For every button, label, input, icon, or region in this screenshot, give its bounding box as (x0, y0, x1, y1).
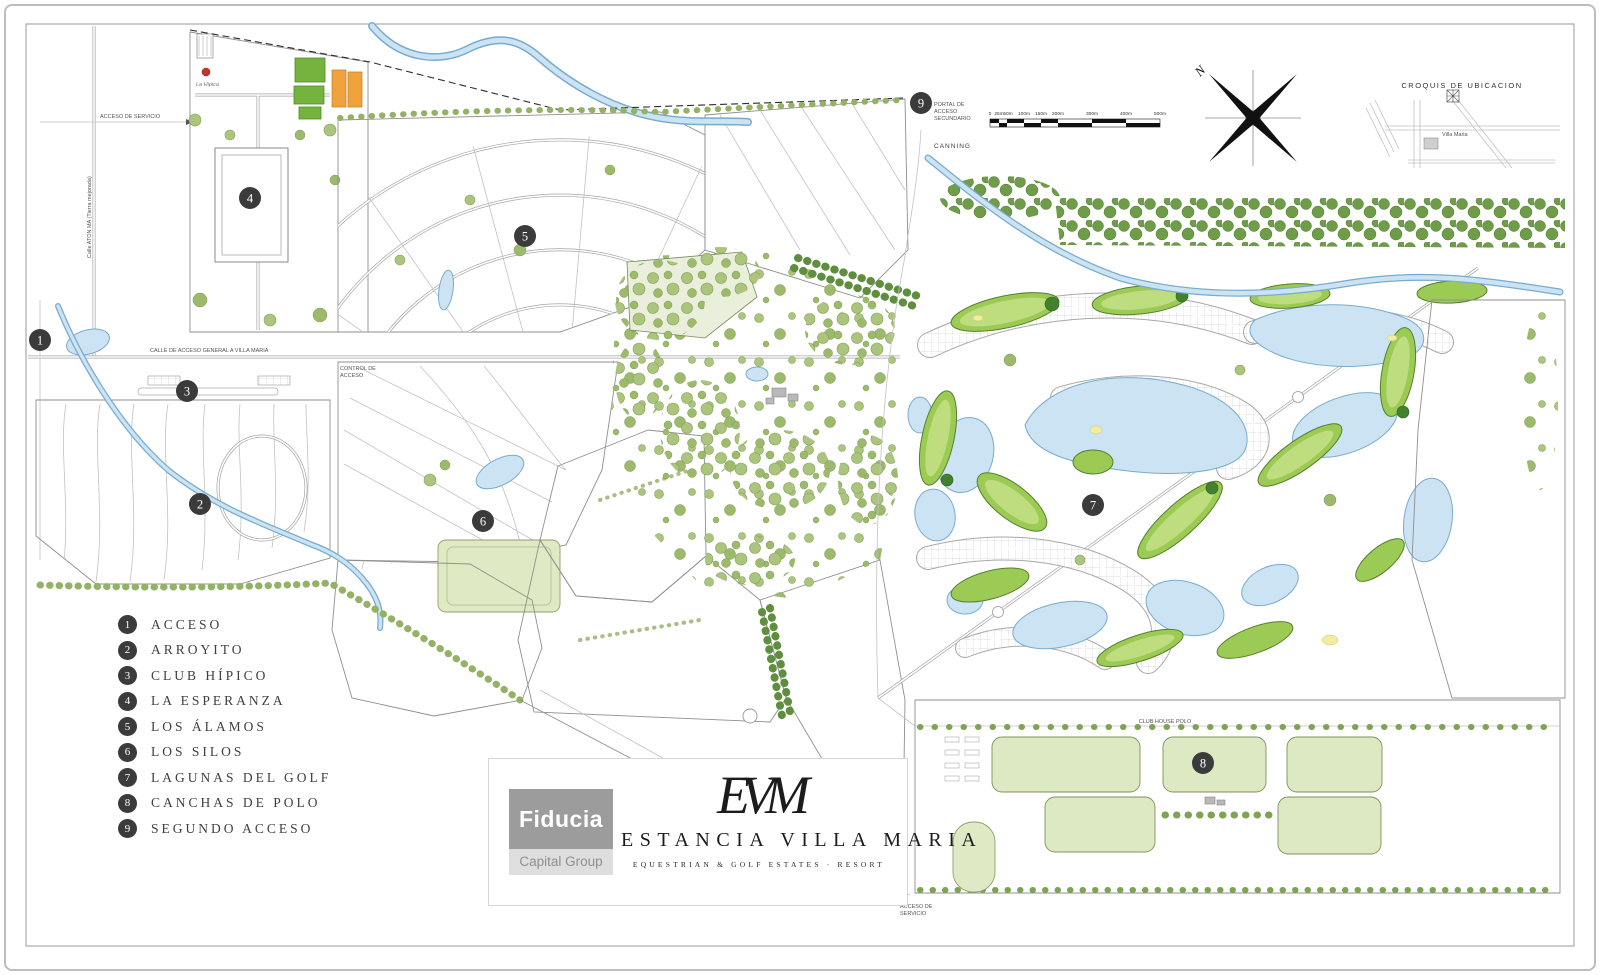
legend-item-4: 4LA ESPERANZA (118, 689, 331, 715)
legend-label-8: CANCHAS DE POLO (151, 795, 321, 811)
marker-6-number: 6 (480, 515, 486, 529)
legend-badge-1: 1 (118, 615, 137, 634)
legend-item-6: 6LOS SILOS (118, 740, 331, 766)
marker-8-number: 8 (1200, 757, 1206, 771)
legend-label-2: ARROYITO (151, 642, 245, 658)
legend-badge-8: 8 (118, 794, 137, 813)
canning-label: CANNING (934, 143, 971, 150)
marker-5: 5 (514, 225, 536, 247)
marker-9-number: 9 (918, 97, 924, 111)
scale-label-100: 100m (1018, 111, 1030, 117)
scale-label-25: 25m (994, 111, 1003, 117)
legend-item-5: 5LOS ÁLAMOS (118, 714, 331, 740)
legend-label-1: ACCESO (151, 617, 222, 633)
portal-label-1: PORTAL DE (934, 102, 965, 108)
marker-1: 1 (29, 329, 51, 351)
scale-label-300: 300m (1086, 111, 1098, 117)
scale-label-0: 0 (989, 111, 992, 117)
legend-badge-4: 4 (118, 692, 137, 711)
croquis-title: CROQUIS DE UBICACION (1401, 81, 1522, 90)
resort-title: ESTANCIA VILLA MARIA (621, 829, 897, 852)
access-control-label-1: CONTROL DE (340, 366, 376, 372)
marker-1-number: 1 (37, 334, 43, 348)
legend-label-5: LOS ÁLAMOS (151, 719, 267, 735)
resort-subtitle: EQUESTRIAN & GOLF ESTATES · RESORT (621, 860, 897, 869)
legend: 1ACCESO 2ARROYITO 3CLUB HÍPICO 4LA ESPER… (118, 612, 331, 842)
polo-road-label: CLUB HOUSE POLO (1139, 719, 1192, 725)
fiducia-subtitle: Capital Group (509, 849, 613, 875)
croquis-site-label: Villa Maria (1442, 132, 1469, 138)
scale-label-400: 400m (1120, 111, 1132, 117)
legend-badge-7: 7 (118, 768, 137, 787)
scale-label-500: 500m (1154, 111, 1166, 117)
masterplan-canvas: 1 2 3 4 5 6 7 8 9 CALLE DE ACCESO GENERA… (0, 0, 1600, 975)
la-hipica-label: La Hipica (196, 82, 219, 88)
marker-3: 3 (176, 380, 198, 402)
marker-7-number: 7 (1090, 499, 1096, 513)
legend-badge-9: 9 (118, 819, 137, 838)
legend-item-2: 2ARROYITO (118, 638, 331, 664)
fiducia-logo: Fiducia Capital Group (509, 789, 613, 875)
legend-badge-6: 6 (118, 743, 137, 762)
marker-3-number: 3 (184, 385, 190, 399)
legend-item-7: 7LAGUNAS DEL GOLF (118, 765, 331, 791)
legend-item-1: 1ACCESO (118, 612, 331, 638)
service-access-left-label: ACCESO DE SERVICIO (100, 114, 161, 120)
portal-label-3: SECUNDARIO (934, 116, 971, 122)
legend-item-9: 9SEGUNDO ACCESO (118, 816, 331, 842)
marker-4: 4 (239, 187, 261, 209)
scale-label-200: 200m (1052, 111, 1064, 117)
legend-label-3: CLUB HÍPICO (151, 668, 268, 684)
portal-label-2: ACCESO (934, 109, 958, 115)
legend-label-7: LAGUNAS DEL GOLF (151, 770, 331, 786)
scale-label-50: 50m (1003, 111, 1012, 117)
scale-label-150: 150m (1035, 111, 1047, 117)
marker-2-number: 2 (197, 498, 203, 512)
legend-badge-5: 5 (118, 717, 137, 736)
marker-5-number: 5 (522, 230, 528, 244)
legend-label-6: LOS SILOS (151, 744, 244, 760)
legend-label-9: SEGUNDO ACCESO (151, 821, 313, 837)
marker-9: 9 (910, 92, 932, 114)
legend-item-3: 3CLUB HÍPICO (118, 663, 331, 689)
legend-badge-3: 3 (118, 666, 137, 685)
service-access-bottom-label-2: SERVICIO (900, 911, 927, 917)
fiducia-wordmark: Fiducia (509, 789, 613, 849)
legend-badge-2: 2 (118, 641, 137, 660)
legend-label-4: LA ESPERANZA (151, 693, 286, 709)
marker-4-number: 4 (247, 192, 254, 206)
left-road-label: Calle ATON MA (Tierra mejorada) (87, 176, 93, 258)
marker-6: 6 (472, 510, 494, 532)
resort-brand: EVM ESTANCIA VILLA MARIA EQUESTRIAN & GO… (621, 765, 897, 869)
evm-monogram: EVM (621, 765, 897, 827)
legend-item-8: 8CANCHAS DE POLO (118, 791, 331, 817)
marker-2: 2 (189, 493, 211, 515)
access-control-label-2: ACCESO (340, 373, 364, 379)
marker-8: 8 (1192, 752, 1214, 774)
marker-7: 7 (1082, 494, 1104, 516)
main-access-road-label: CALLE DE ACCESO GENERAL A VILLA MARIA (150, 348, 269, 354)
brand-panel: Fiducia Capital Group EVM ESTANCIA VILLA… (488, 758, 908, 906)
